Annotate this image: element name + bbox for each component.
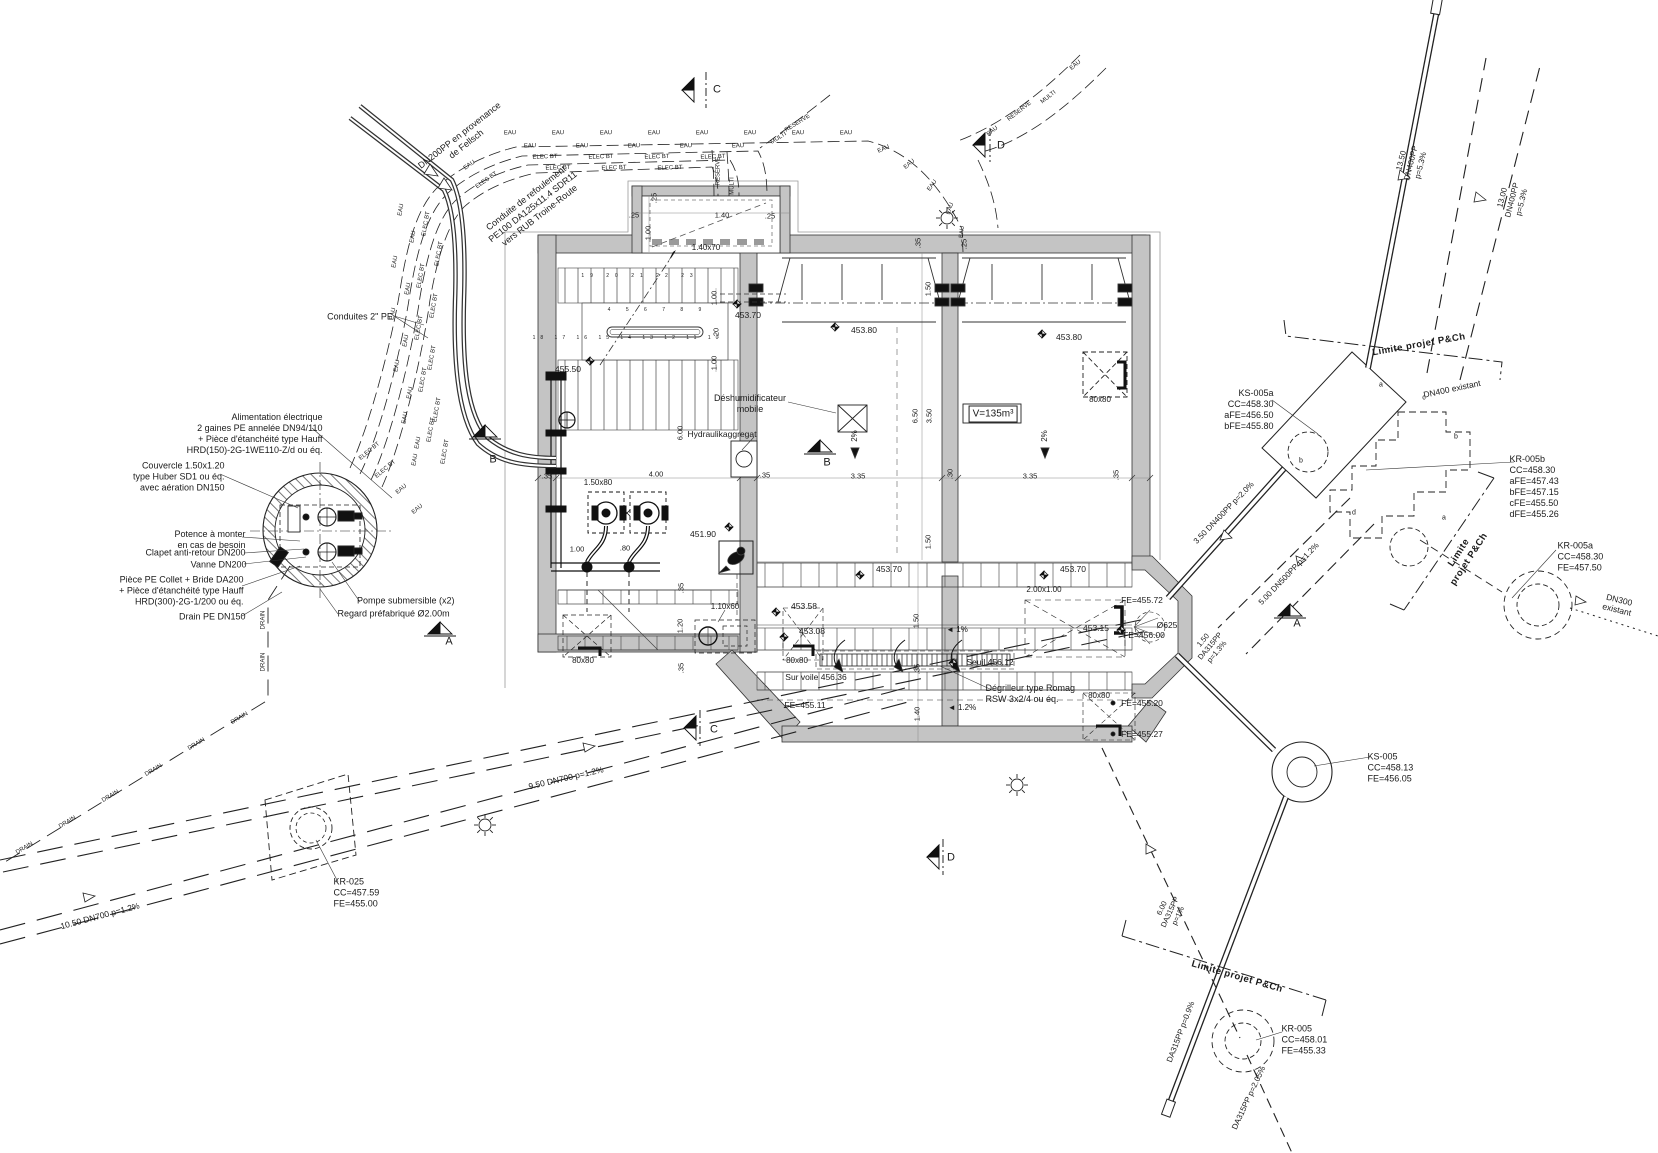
label-kr005: KR-005 CC=458.01 FE=455.33 <box>1282 1024 1347 1057</box>
elevation-label: 453.80 <box>1056 332 1082 342</box>
pipe-tag-elec-bt: ELEC BT <box>588 154 613 162</box>
dim-label: .35 <box>913 238 922 248</box>
dim-label: .35 <box>542 471 552 480</box>
elevation-label: Seuil 456.12 <box>966 657 1013 667</box>
dim-label: .80 <box>620 543 630 552</box>
pipe-tag-drain: DRAIN <box>15 841 35 857</box>
elevation-label: FE=455.20 <box>1121 698 1163 708</box>
pipe-tag-drain: DRAIN <box>187 737 207 753</box>
pipe-tag-eau: EAU <box>393 359 402 372</box>
pipe-tag-elec-bt: ELEC BT <box>700 154 725 162</box>
pipe-tag-eau: EAU <box>648 130 661 138</box>
note-degrilleur: Dégrilleur type Romag RSW 3x2/4 ou éq. <box>986 683 1101 705</box>
pipe-tag-elec-bt: ELEC BT <box>418 367 430 393</box>
pipe-tag-eau: EAU <box>792 130 805 138</box>
note-vanne: Vanne DN200 <box>172 560 247 571</box>
label-kr005b: KR-005b CC=458.30 aFE=457.43 bFE=457.15 … <box>1510 454 1585 520</box>
pipe-tag-eau: EAU <box>744 130 757 138</box>
slope-label: ◄ 1.2% <box>948 703 976 713</box>
pipe-tag-eau: EAU <box>406 386 415 399</box>
size-label: 1.40x70 <box>692 243 720 253</box>
size-label: 80x80 <box>786 656 808 666</box>
pipe-tag-eau: EAU <box>696 130 709 138</box>
elevation-label: FE=456.00 <box>1123 630 1165 640</box>
dim-label: 6.00 <box>675 426 684 441</box>
dim-label: .20 <box>711 328 720 338</box>
pipe-label-da315pp-150: 1.50 DA315PP p=1.3% <box>1189 625 1231 668</box>
pipe-tag-elec-bt: ELEC BT <box>644 154 669 162</box>
pipe-tag-eau: EAU <box>840 130 853 138</box>
label-ks005a: KS-005a CC=458.30 aFE=456.50 bFE=455.80 <box>1179 388 1274 432</box>
pipe-tag-eau: EAU <box>504 130 517 138</box>
dim-label: .25 <box>959 239 968 249</box>
section-marker-label: D <box>947 851 955 864</box>
elevation-label: 453.15 <box>1083 623 1109 633</box>
dim-label: 6.50 <box>910 409 919 424</box>
dim-label: 1.40 <box>912 707 921 722</box>
pipe-tag-reserve: RESERVE <box>1006 100 1033 123</box>
pipe-label-dn700-950: 9.50 DN700 p=1.2% <box>527 764 604 791</box>
pipe-tag-elec-bt: ELEC BT <box>427 345 439 371</box>
elevation-label: 455.50 <box>555 364 581 374</box>
manhole-point-label: b <box>1454 434 1458 443</box>
stair-step-numbers: 19 20 21 22 23 <box>581 273 698 279</box>
dim-label: .30 <box>945 469 954 479</box>
pipe-tag-drain: DRAIN <box>260 653 267 672</box>
pipe-tag-eau: EAU <box>600 130 613 138</box>
labels-layer: DN200PP en provenance de FellschConduite… <box>0 0 1658 1153</box>
technical-drawing-plan: DN200PP en provenance de FellschConduite… <box>0 0 1658 1153</box>
manhole-point-label: c <box>1422 395 1426 404</box>
dim-label: .25 <box>629 210 639 219</box>
elevation-label: 453.58 <box>791 601 817 611</box>
dim-label: .25 <box>649 193 658 203</box>
pipe-tag-eau: EAU <box>411 453 420 466</box>
pipe-tag-eau: EAU <box>552 130 565 138</box>
elevation-label: 453.08 <box>799 626 825 636</box>
dim-label: 1.50 <box>911 614 920 629</box>
pipe-tag-elec-bt: ELEC BT <box>374 459 398 481</box>
label-limite-bottom: Limite projet P&Ch <box>1190 958 1284 995</box>
pipe-tag-eau: EAU <box>397 203 406 216</box>
pipe-label-dn700-1050: 10.50 DN700 p=1.2% <box>59 900 140 931</box>
pipe-tag-eau: EAU <box>680 143 693 151</box>
pipe-label-dn500pp-500: 5.00 DN500PP p=1.2% <box>1257 541 1322 607</box>
elevation-label: 453.70 <box>876 564 902 574</box>
pipe-tag-eau: EAU <box>404 282 413 295</box>
section-marker-label: C <box>713 83 721 96</box>
pipe-tag-eau: EAU <box>524 143 537 151</box>
pipe-tag-reserve: RESERVE <box>715 157 722 186</box>
pipe-tag-eau: EAU <box>628 143 641 151</box>
pipe-tag-drain: DRAIN <box>144 763 164 779</box>
pipe-label-dn300-existant: DN300 existant <box>1596 590 1640 620</box>
dim-label: .25 <box>765 211 775 220</box>
pipe-tag-elec-bt: ELEC BT <box>475 171 500 191</box>
label-kr005a: KR-005a CC=458.30 FE=457.50 <box>1558 541 1623 574</box>
dim-label: 1.50 <box>923 282 932 297</box>
pipe-tag-eau: EAU <box>401 411 410 424</box>
pipe-tag-eau: EAU <box>395 483 409 497</box>
note-drain-pe: Drain PE DN150 <box>161 612 246 623</box>
elevation-label: FE=455.72 <box>1121 595 1163 605</box>
label-limite-top: Limite projet P&Ch <box>1371 331 1466 359</box>
pipe-tag-elec-bt: ELEC BT <box>429 293 441 319</box>
pipe-tag-elec-bt: ELEC BT <box>545 165 570 173</box>
elevation-label: 453.70 <box>735 310 761 320</box>
slope-label: ◄ 1% <box>946 625 968 635</box>
elevation-label: 451.90 <box>690 529 716 539</box>
note-pompe-submersible: Pompe submersible (x2) <box>357 596 477 607</box>
label-kr025: KR-025 CC=457.59 FE=455.00 <box>334 877 399 910</box>
slope-label: 2% <box>1040 430 1050 442</box>
pipe-label-dn400pp-350: 3.50 DN400PP p=2.0% <box>1192 480 1257 546</box>
size-label: 2.00x1.00 <box>1026 585 1061 595</box>
dim-label: .35 <box>676 583 685 593</box>
label-volume: V=135m³ <box>969 406 1018 423</box>
pipe-tag-elec-bt: ELEC BT <box>657 165 682 173</box>
note-conduite-refoulement: Conduite de refoulement PE100 DA125x11.4… <box>480 160 586 253</box>
pipe-tag-drain: DRAIN <box>58 815 78 831</box>
pipe-tag-eau: EAU <box>391 255 400 268</box>
pipe-tag-eau: EAU <box>409 230 418 243</box>
note-clapet: Clapet anti-retour DN200 <box>121 548 246 559</box>
pipe-tag-elec-bt: ELEC BT <box>426 417 438 443</box>
pipe-tag-eau: EAU <box>576 143 589 151</box>
section-marker-label: B <box>823 456 830 469</box>
pipe-tag-multi: MULTI <box>729 177 736 195</box>
manhole-point-label: a <box>1379 382 1383 391</box>
pipe-label-da315pp-09: DA315PP p=0.9% <box>1165 1000 1197 1064</box>
pipe-tag-eau: EAU <box>732 143 745 151</box>
manhole-point-label: a <box>1442 515 1446 524</box>
note-deshumidificateur: Déshumidificateur mobile <box>714 393 786 415</box>
section-marker-label: B <box>489 453 496 466</box>
note-conduites-2pe: Conduites 2" PE <box>327 312 393 323</box>
label-ks005: KS-005 CC=458.13 FE=456.05 <box>1368 752 1433 785</box>
pipe-tag-eau: EAU <box>926 179 939 193</box>
note-couvercle: Couvercle 1.50x1.20 type Huber SD1 ou éq… <box>110 461 225 494</box>
pipe-tag-eau: EAU <box>402 334 411 347</box>
pipe-tag-elec-bt: ELEC BT <box>532 154 557 162</box>
size-label: 80x80 <box>1088 691 1110 701</box>
section-marker-label: A <box>445 635 452 648</box>
pipe-tag-eau: EAU <box>986 125 1000 138</box>
pipe-tag-eau: EAU <box>414 436 423 449</box>
note-dn200-provenance: DN200PP en provenance de Fellsch <box>416 100 510 180</box>
elevation-label: Ø625 <box>1157 620 1178 630</box>
size-label: 1.10x60 <box>711 602 739 612</box>
pipe-tag-reserve: RESERVE <box>784 113 812 134</box>
manhole-point-label: d <box>1352 510 1356 519</box>
pipe-label-dn400-existant: DN400 existant <box>1422 378 1481 400</box>
dim-label: 1.20 <box>675 619 684 634</box>
pipe-label-da315pp-205: DA315PP p=2.05% <box>1230 1065 1268 1132</box>
dim-label: 1.00 <box>709 291 718 306</box>
note-regard: Regard préfabriqué Ø2.00m <box>338 609 473 620</box>
stair-step-numbers: 4 5 6 7 8 9 <box>608 307 709 313</box>
stair-step-numbers: 18 17 16 15 14 13 12 11 10 <box>533 335 724 341</box>
note-potence: Potence à monter en cas de besoin <box>151 529 246 551</box>
pipe-tag-drain: DRAIN <box>260 611 267 630</box>
dim-label: 1.00 <box>709 356 718 371</box>
pipe-tag-elec-bt: ELEC BT <box>414 315 426 341</box>
dim-label: .35 <box>1111 470 1120 480</box>
elevation-label: 453.70 <box>1060 564 1086 574</box>
pipe-tag-elec-bt: ELEC BT <box>440 439 452 465</box>
dim-label: 1.00 <box>570 544 585 553</box>
dim-label: 1.40 <box>715 210 730 219</box>
pipe-tag-elec-bt: ELEC BT <box>358 441 382 463</box>
note-hydraulikaggregat: Hydraulikaggregat <box>688 429 757 439</box>
pipe-label-dn400pp-1300: 13.00 DN400PP p=5.3% <box>1494 179 1531 221</box>
size-label: 80x80 <box>1089 395 1111 405</box>
label-limite-mid: Limite projet P&Ch <box>1438 524 1490 587</box>
section-marker-label: D <box>997 139 1005 152</box>
pipe-tag-eau: EAU <box>411 503 425 517</box>
size-label: 80x80 <box>572 656 594 666</box>
pipe-tag-eau: EAU <box>463 159 477 172</box>
pipe-tag-eau: EAU <box>389 307 398 320</box>
elevation-label: Sur voile 456.36 <box>785 672 846 682</box>
pipe-tag-eau: EAU <box>1069 59 1083 72</box>
section-marker-label: A <box>1293 617 1300 630</box>
note-alimentation: Alimentation électrique 2 gaines PE anne… <box>158 412 323 456</box>
pipe-tag-elec-bt: ELEC BT <box>432 397 444 423</box>
elevation-label: FE=455.11 <box>784 700 825 710</box>
elevation-label: FE=455.27 <box>1121 729 1163 739</box>
dim-label: 1.50 <box>923 535 932 550</box>
pipe-tag-drain: DRAIN <box>230 711 250 727</box>
manhole-point-label: b <box>1299 458 1303 467</box>
section-marker-label: C <box>710 723 718 736</box>
dim-label: .35 <box>676 663 685 673</box>
pipe-tag-eau: EAU <box>959 226 967 239</box>
pipe-label-dn400pp-1350: 13.50 DN400PP p=5.3% <box>1393 142 1430 184</box>
pipe-tag-elec-bt: ELEC BT <box>434 241 446 267</box>
dim-label: 3.35 <box>851 471 866 480</box>
pipe-tag-elec-bt: ELEC BT <box>421 211 433 237</box>
pipe-tag-multi: MULTI <box>1040 90 1058 107</box>
slope-label: 2% <box>850 430 860 442</box>
pipe-tag-eau: EAU <box>945 202 956 216</box>
pipe-tag-eau: EAU <box>903 158 917 172</box>
elevation-label: 453.80 <box>851 325 877 335</box>
dim-label: 4.00 <box>649 469 664 478</box>
dim-label: 3.50 <box>924 409 933 424</box>
pipe-tag-multi: MULTI <box>770 131 789 147</box>
dim-label: 3.35 <box>1023 471 1038 480</box>
size-label: 1.50x80 <box>584 478 612 488</box>
pipe-tag-elec-bt: ELEC BT <box>601 165 626 173</box>
pipe-tag-drain: DRAIN <box>101 789 121 805</box>
pipe-tag-eau: EAU <box>877 144 891 156</box>
dim-label: 1.00 <box>643 226 652 241</box>
pipe-tag-elec-bt: ELEC BT <box>416 263 428 289</box>
pipe-label-da315pp-600: 6.00 DA315PP p=1% <box>1151 891 1190 932</box>
dim-label: .35 <box>912 664 921 674</box>
dim-label: .35 <box>760 470 770 479</box>
note-piece-pe: Pièce PE Collet + Bride DA200 + Pièce d'… <box>89 575 244 608</box>
